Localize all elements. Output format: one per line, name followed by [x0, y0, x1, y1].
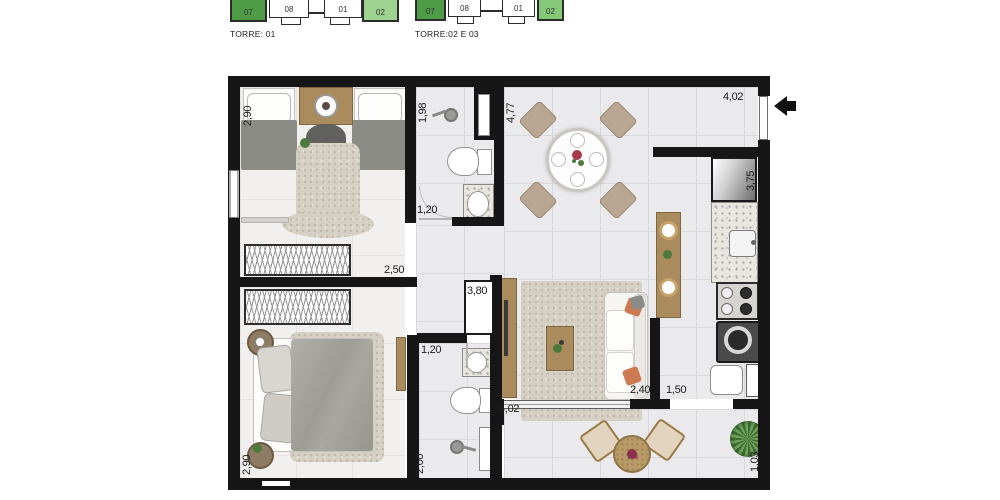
- key-plan-unit-01: 01: [502, 0, 535, 17]
- wardrobe-bedroom1: [244, 244, 351, 276]
- key-plan-connector: [481, 10, 502, 12]
- round-nightstand-bottom-plant: [253, 444, 262, 453]
- wall-bath1-right: [494, 87, 504, 225]
- wall-bath1-bottom: [452, 217, 504, 226]
- unit-label: 07: [426, 7, 435, 16]
- dim-dining-height: 4,77: [505, 89, 517, 123]
- wall-top: [228, 76, 770, 87]
- bar-plant: [663, 250, 672, 259]
- dim-bedroom1-height: 2,90: [242, 90, 254, 126]
- key-plan-unit-07: 07: [230, 0, 267, 22]
- wall-right-main: [758, 140, 770, 490]
- key-plan-unit-tab: [508, 17, 525, 24]
- key-plan-title: TORRE: 01: [230, 29, 276, 39]
- twin-bed-right-blanket: [352, 120, 408, 170]
- double-bed-pillow-top: [256, 344, 295, 394]
- key-plan-unit-08: 08: [448, 0, 481, 17]
- twin-bed-right-pillow: [358, 93, 402, 123]
- key-plan-connector: [309, 12, 324, 14]
- unit-label: 08: [460, 4, 469, 13]
- wall-living-balcony-mid: [630, 399, 670, 409]
- stove-burner: [740, 303, 752, 315]
- bar-stool-1: [659, 221, 678, 240]
- balcony-sliding-door-rail: [504, 404, 632, 405]
- dim-bath1-width: 1,20: [417, 204, 437, 216]
- bar-stool-2: [659, 278, 678, 297]
- bedroom1-rug-arch: [282, 210, 374, 238]
- entrance-arrow-icon: [774, 96, 787, 116]
- key-plan-unit-08: 08: [269, 0, 309, 18]
- wall-bottom: [228, 478, 770, 490]
- dining-centerpiece-flowers: [572, 150, 582, 160]
- unit-label: 01: [514, 4, 523, 13]
- stove-burner: [740, 287, 752, 299]
- wall-kitchen-top: [653, 147, 770, 157]
- key-plan-unit-tab: [330, 18, 350, 25]
- key-plan-unit-07: 07: [415, 0, 446, 21]
- dim-hall-length: 3,80: [467, 285, 487, 297]
- key-plan-title: TORRE:02 E 03: [415, 29, 479, 39]
- wall-service-balcony: [733, 399, 770, 409]
- dim-balcony-depth: 1,03: [749, 440, 761, 472]
- tv: [504, 300, 508, 356]
- wardrobe-bedroom2: [244, 289, 351, 325]
- wall-bedroom1-bath1: [405, 87, 416, 223]
- laundry-tank: [710, 365, 743, 395]
- unit-label: 02: [546, 7, 555, 16]
- dim-kitchen-height: 3,75: [745, 157, 757, 191]
- bedroom1-window: [229, 170, 239, 218]
- washing-machine-door: [724, 326, 752, 354]
- shower-glass-bath1: [478, 94, 490, 136]
- key-plan-unit-tab: [281, 18, 301, 25]
- shower-head-bath1: [444, 108, 458, 122]
- stove-burner: [721, 287, 733, 299]
- dim-bath2-width: 1,20: [421, 344, 441, 356]
- unit-label: 08: [285, 5, 294, 14]
- wall-right-top: [758, 76, 770, 96]
- dim-sofa-span: 2,40: [630, 384, 650, 396]
- key-plan-unit-02: 02: [537, 0, 564, 21]
- entrance-arrow-tail: [787, 101, 796, 111]
- floor-plan-page: 07 08 01 02 TORRE: 01 07 08 01 02 TORRE:…: [0, 0, 1000, 500]
- bedroom1-low-cabinet: [241, 217, 289, 223]
- dining-plate: [570, 133, 585, 148]
- unit-label: 01: [339, 5, 348, 14]
- toilet-bowl-bath1: [447, 147, 479, 176]
- toilet-bowl-bath2: [450, 387, 481, 414]
- table-lamp-center: [322, 102, 330, 110]
- dining-plate: [589, 152, 604, 167]
- dim-top-width: 4,02: [723, 91, 743, 103]
- round-nightstand-top-lamp: [255, 337, 265, 347]
- bedroom2-window: [262, 481, 290, 486]
- coffee-table-plant: [553, 344, 562, 353]
- dim-service-width: 1,50: [666, 384, 686, 396]
- dim-bedroom2-height: 2,90: [241, 441, 253, 475]
- bath1-door-line: [419, 218, 452, 220]
- entrance-door-leaf: [759, 96, 768, 140]
- twin-bed-left-blanket: [241, 120, 297, 170]
- kitchen-faucet: [751, 240, 756, 245]
- sink-bath1: [467, 191, 489, 217]
- bedroom2-door-leaf: [396, 337, 406, 391]
- key-plan-unit-02: 02: [362, 0, 399, 22]
- double-bed-blanket: [291, 339, 373, 451]
- unit-label: 02: [376, 8, 385, 17]
- key-plan-unit-01: 01: [324, 0, 362, 18]
- toilet-tank-bath1: [477, 149, 492, 175]
- sink-bath2: [466, 352, 487, 373]
- dining-plate: [570, 172, 585, 187]
- unit-label: 07: [244, 8, 253, 17]
- wall-bedrooms-divider: [228, 277, 417, 287]
- dim-bath1-length: 1,98: [417, 89, 429, 123]
- bedroom1-plant: [300, 138, 310, 148]
- dining-plate: [551, 152, 566, 167]
- bath2-door-line: [466, 343, 468, 366]
- wall-kitchen-living: [650, 318, 660, 399]
- dim-bedroom2-width: 2,50: [384, 264, 404, 276]
- dim-balcony-width: 4,02: [499, 403, 519, 415]
- balcony-rug-flowers: [627, 449, 637, 459]
- sofa-cushion: [606, 310, 634, 351]
- wall-bath2-top: [417, 333, 467, 343]
- key-plan-unit-tab: [457, 17, 474, 24]
- dim-bath2-height: 2,00: [414, 440, 426, 474]
- stove-burner: [721, 303, 733, 315]
